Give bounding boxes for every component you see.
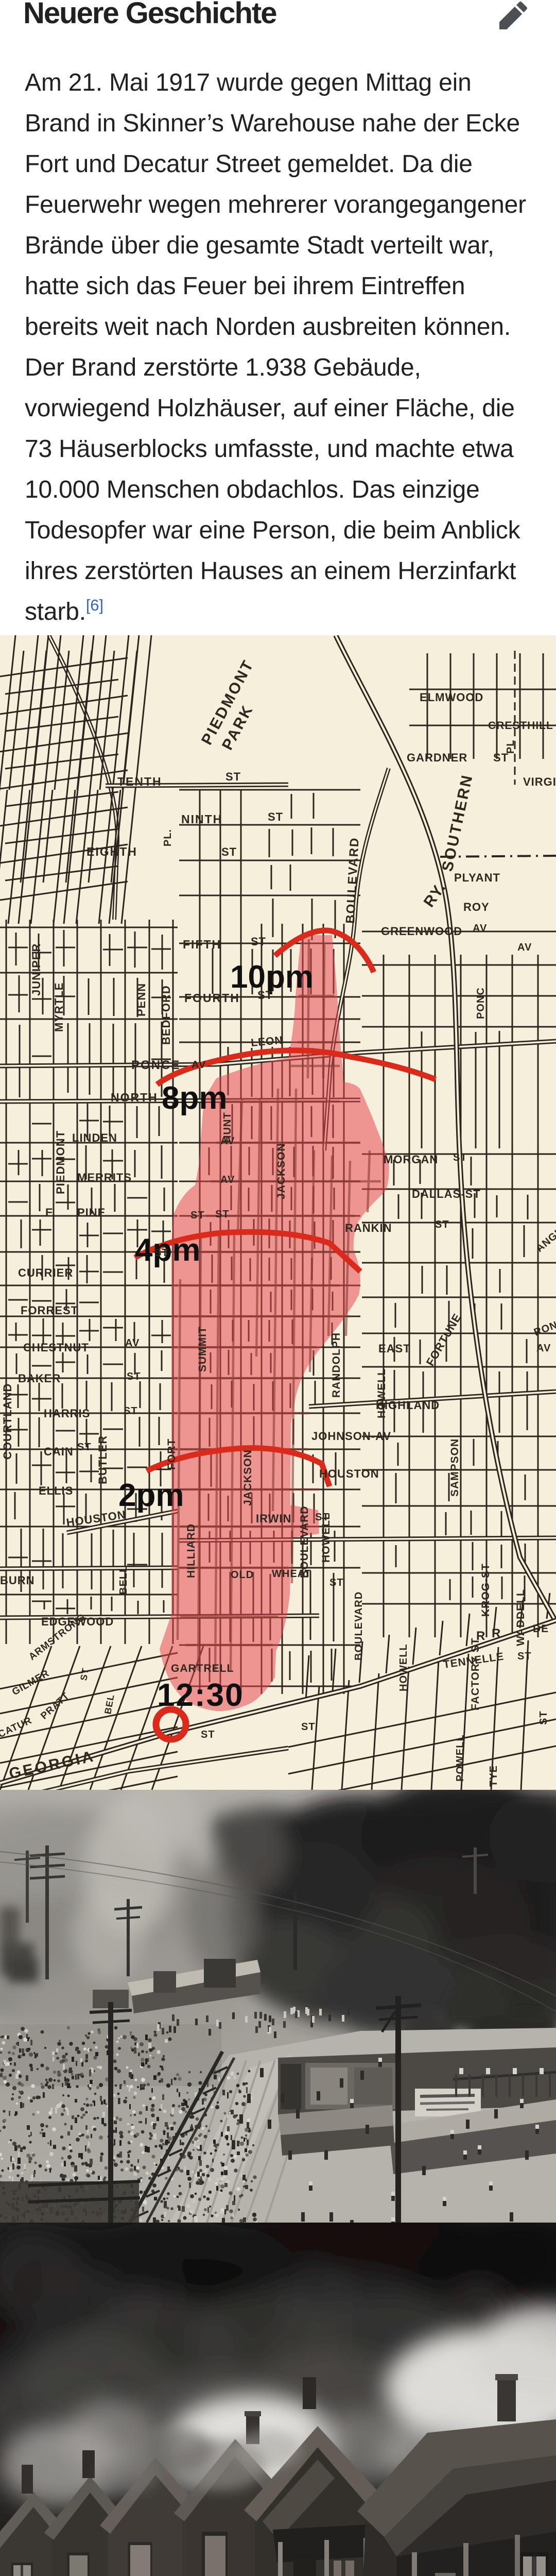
svg-text:BOULEVARD: BOULEVARD <box>299 1506 310 1578</box>
svg-text:WADDELL: WADDELL <box>515 1589 527 1646</box>
svg-text:ST: ST <box>190 1210 205 1221</box>
svg-text:ST: ST <box>124 1405 138 1417</box>
svg-text:GARDNER: GARDNER <box>407 751 467 764</box>
svg-text:AV: AV <box>220 1174 235 1185</box>
svg-text:MYRTLE: MYRTLE <box>53 982 65 1032</box>
svg-text:ST: ST <box>78 1667 91 1682</box>
svg-text:PINE: PINE <box>77 1206 106 1219</box>
svg-text:BEDFORD: BEDFORD <box>160 985 172 1045</box>
svg-text:NORTH: NORTH <box>111 1091 158 1104</box>
svg-text:FORREST: FORREST <box>21 1304 78 1317</box>
svg-text:EAST: EAST <box>378 1342 411 1355</box>
svg-text:HUNT: HUNT <box>222 1112 233 1143</box>
svg-text:JACKSON: JACKSON <box>242 1449 254 1506</box>
svg-text:SUMMIT: SUMMIT <box>197 1326 208 1372</box>
svg-text:ST: ST <box>301 1721 316 1733</box>
svg-text:PONCE: PONCE <box>131 1058 180 1072</box>
svg-text:ST: ST <box>538 1710 549 1725</box>
svg-text:ST: ST <box>127 1371 141 1382</box>
svg-text:JACKSON: JACKSON <box>275 1143 287 1199</box>
svg-text:AV: AV <box>125 1337 140 1349</box>
svg-text:RANDOLPH: RANDOLPH <box>331 1332 342 1398</box>
svg-text:E: E <box>45 1206 54 1219</box>
svg-text:ELLIS: ELLIS <box>39 1484 73 1497</box>
svg-text:BUTLER: BUTLER <box>96 1435 109 1484</box>
svg-text:DE: DE <box>533 1623 549 1635</box>
svg-text:ROY: ROY <box>463 901 490 913</box>
svg-text:EIGHTH: EIGHTH <box>86 845 137 858</box>
svg-text:JUNIPER: JUNIPER <box>30 943 43 996</box>
svg-text:ST: ST <box>77 1442 92 1453</box>
svg-text:2pm: 2pm <box>118 1478 184 1513</box>
svg-text:BELL: BELL <box>118 1566 129 1595</box>
svg-text:PIEDMONT: PIEDMONT <box>54 1130 67 1194</box>
svg-text:BOULEVARD: BOULEVARD <box>353 1591 364 1660</box>
svg-text:POWELL: POWELL <box>455 1734 466 1782</box>
svg-text:R: R <box>492 1626 501 1640</box>
svg-text:R: R <box>476 1629 485 1643</box>
svg-text:WHEAT: WHEAT <box>272 1568 311 1580</box>
svg-text:MORGAN: MORGAN <box>384 1153 438 1166</box>
svg-text:CHESTNUT: CHESTNUT <box>23 1341 89 1354</box>
svg-text:ST: ST <box>251 935 266 948</box>
svg-text:ST: ST <box>215 1209 230 1220</box>
svg-text:NINTH: NINTH <box>181 812 222 826</box>
svg-text:FIFTH: FIFTH <box>183 938 221 951</box>
svg-text:ST: ST <box>453 1152 467 1163</box>
svg-text:SAMPSON: SAMPSON <box>449 1438 461 1497</box>
svg-text:IRWIN: IRWIN <box>256 1512 291 1525</box>
svg-text:ST: ST <box>435 1219 449 1230</box>
svg-text:GREENWOOD: GREENWOOD <box>381 925 462 938</box>
svg-text:CAIN: CAIN <box>44 1445 74 1458</box>
svg-text:OLD: OLD <box>231 1569 254 1581</box>
svg-text:BURN: BURN <box>0 1574 35 1587</box>
svg-text:JOHNSON-AV: JOHNSON-AV <box>311 1430 391 1443</box>
svg-text:RANKIN: RANKIN <box>345 1222 392 1234</box>
svg-text:BAKER: BAKER <box>18 1372 61 1385</box>
svg-text:KROG-ST: KROG-ST <box>480 1563 492 1617</box>
svg-text:12:30: 12:30 <box>157 1677 244 1713</box>
svg-text:AV: AV <box>192 1059 206 1071</box>
svg-text:HARRIS: HARRIS <box>44 1407 90 1420</box>
svg-text:HILLIARD: HILLIARD <box>185 1523 197 1578</box>
svg-text:CRESTHILL: CRESTHILL <box>488 720 553 732</box>
svg-text:FOURTH: FOURTH <box>184 991 240 1005</box>
svg-text:VIRGI: VIRGI <box>523 775 556 788</box>
svg-text:PONC: PONC <box>475 987 486 1019</box>
svg-text:AV: AV <box>473 923 487 934</box>
svg-text:TENTH: TENTH <box>117 775 162 788</box>
svg-text:ST: ST <box>225 770 241 783</box>
svg-text:ST: ST <box>268 810 283 823</box>
svg-text:ST: ST <box>201 1729 215 1740</box>
svg-text:LINDEN: LINDEN <box>72 1131 117 1144</box>
svg-text:GARTRELL: GARTRELL <box>171 1663 234 1674</box>
svg-text:ELMWOOD: ELMWOOD <box>420 691 483 704</box>
svg-text:ST: ST <box>329 1577 344 1588</box>
svg-text:HIGHLAND: HIGHLAND <box>376 1399 440 1412</box>
svg-text:ST: ST <box>517 1651 532 1662</box>
svg-text:PL.: PL. <box>162 829 173 846</box>
svg-text:HOWELL: HOWELL <box>398 1643 409 1691</box>
svg-text:FACTORY ST: FACTORY ST <box>470 1638 481 1710</box>
svg-text:COURTLAND: COURTLAND <box>1 1383 14 1460</box>
svg-text:FORT: FORT <box>166 1438 178 1470</box>
svg-text:ST: ST <box>315 1512 329 1523</box>
svg-text:DALLAS-ST: DALLAS-ST <box>412 1188 481 1200</box>
svg-text:MERRITS: MERRITS <box>77 1171 132 1184</box>
svg-text:PENN: PENN <box>135 983 148 1016</box>
svg-text:AV: AV <box>517 942 532 953</box>
svg-text:ST: ST <box>221 845 237 858</box>
svg-text:CURRIER: CURRIER <box>18 1266 73 1279</box>
svg-text:PLYANT: PLYANT <box>454 871 500 884</box>
svg-text:HOUSTON: HOUSTON <box>319 1467 379 1480</box>
svg-text:ST: ST <box>257 989 273 1002</box>
svg-text:TYE: TYE <box>488 1765 499 1787</box>
svg-text:PL: PL <box>505 739 516 754</box>
svg-text:AV: AV <box>536 1343 551 1354</box>
svg-text:8pm: 8pm <box>162 1080 227 1116</box>
svg-text:ST: ST <box>154 1247 169 1259</box>
